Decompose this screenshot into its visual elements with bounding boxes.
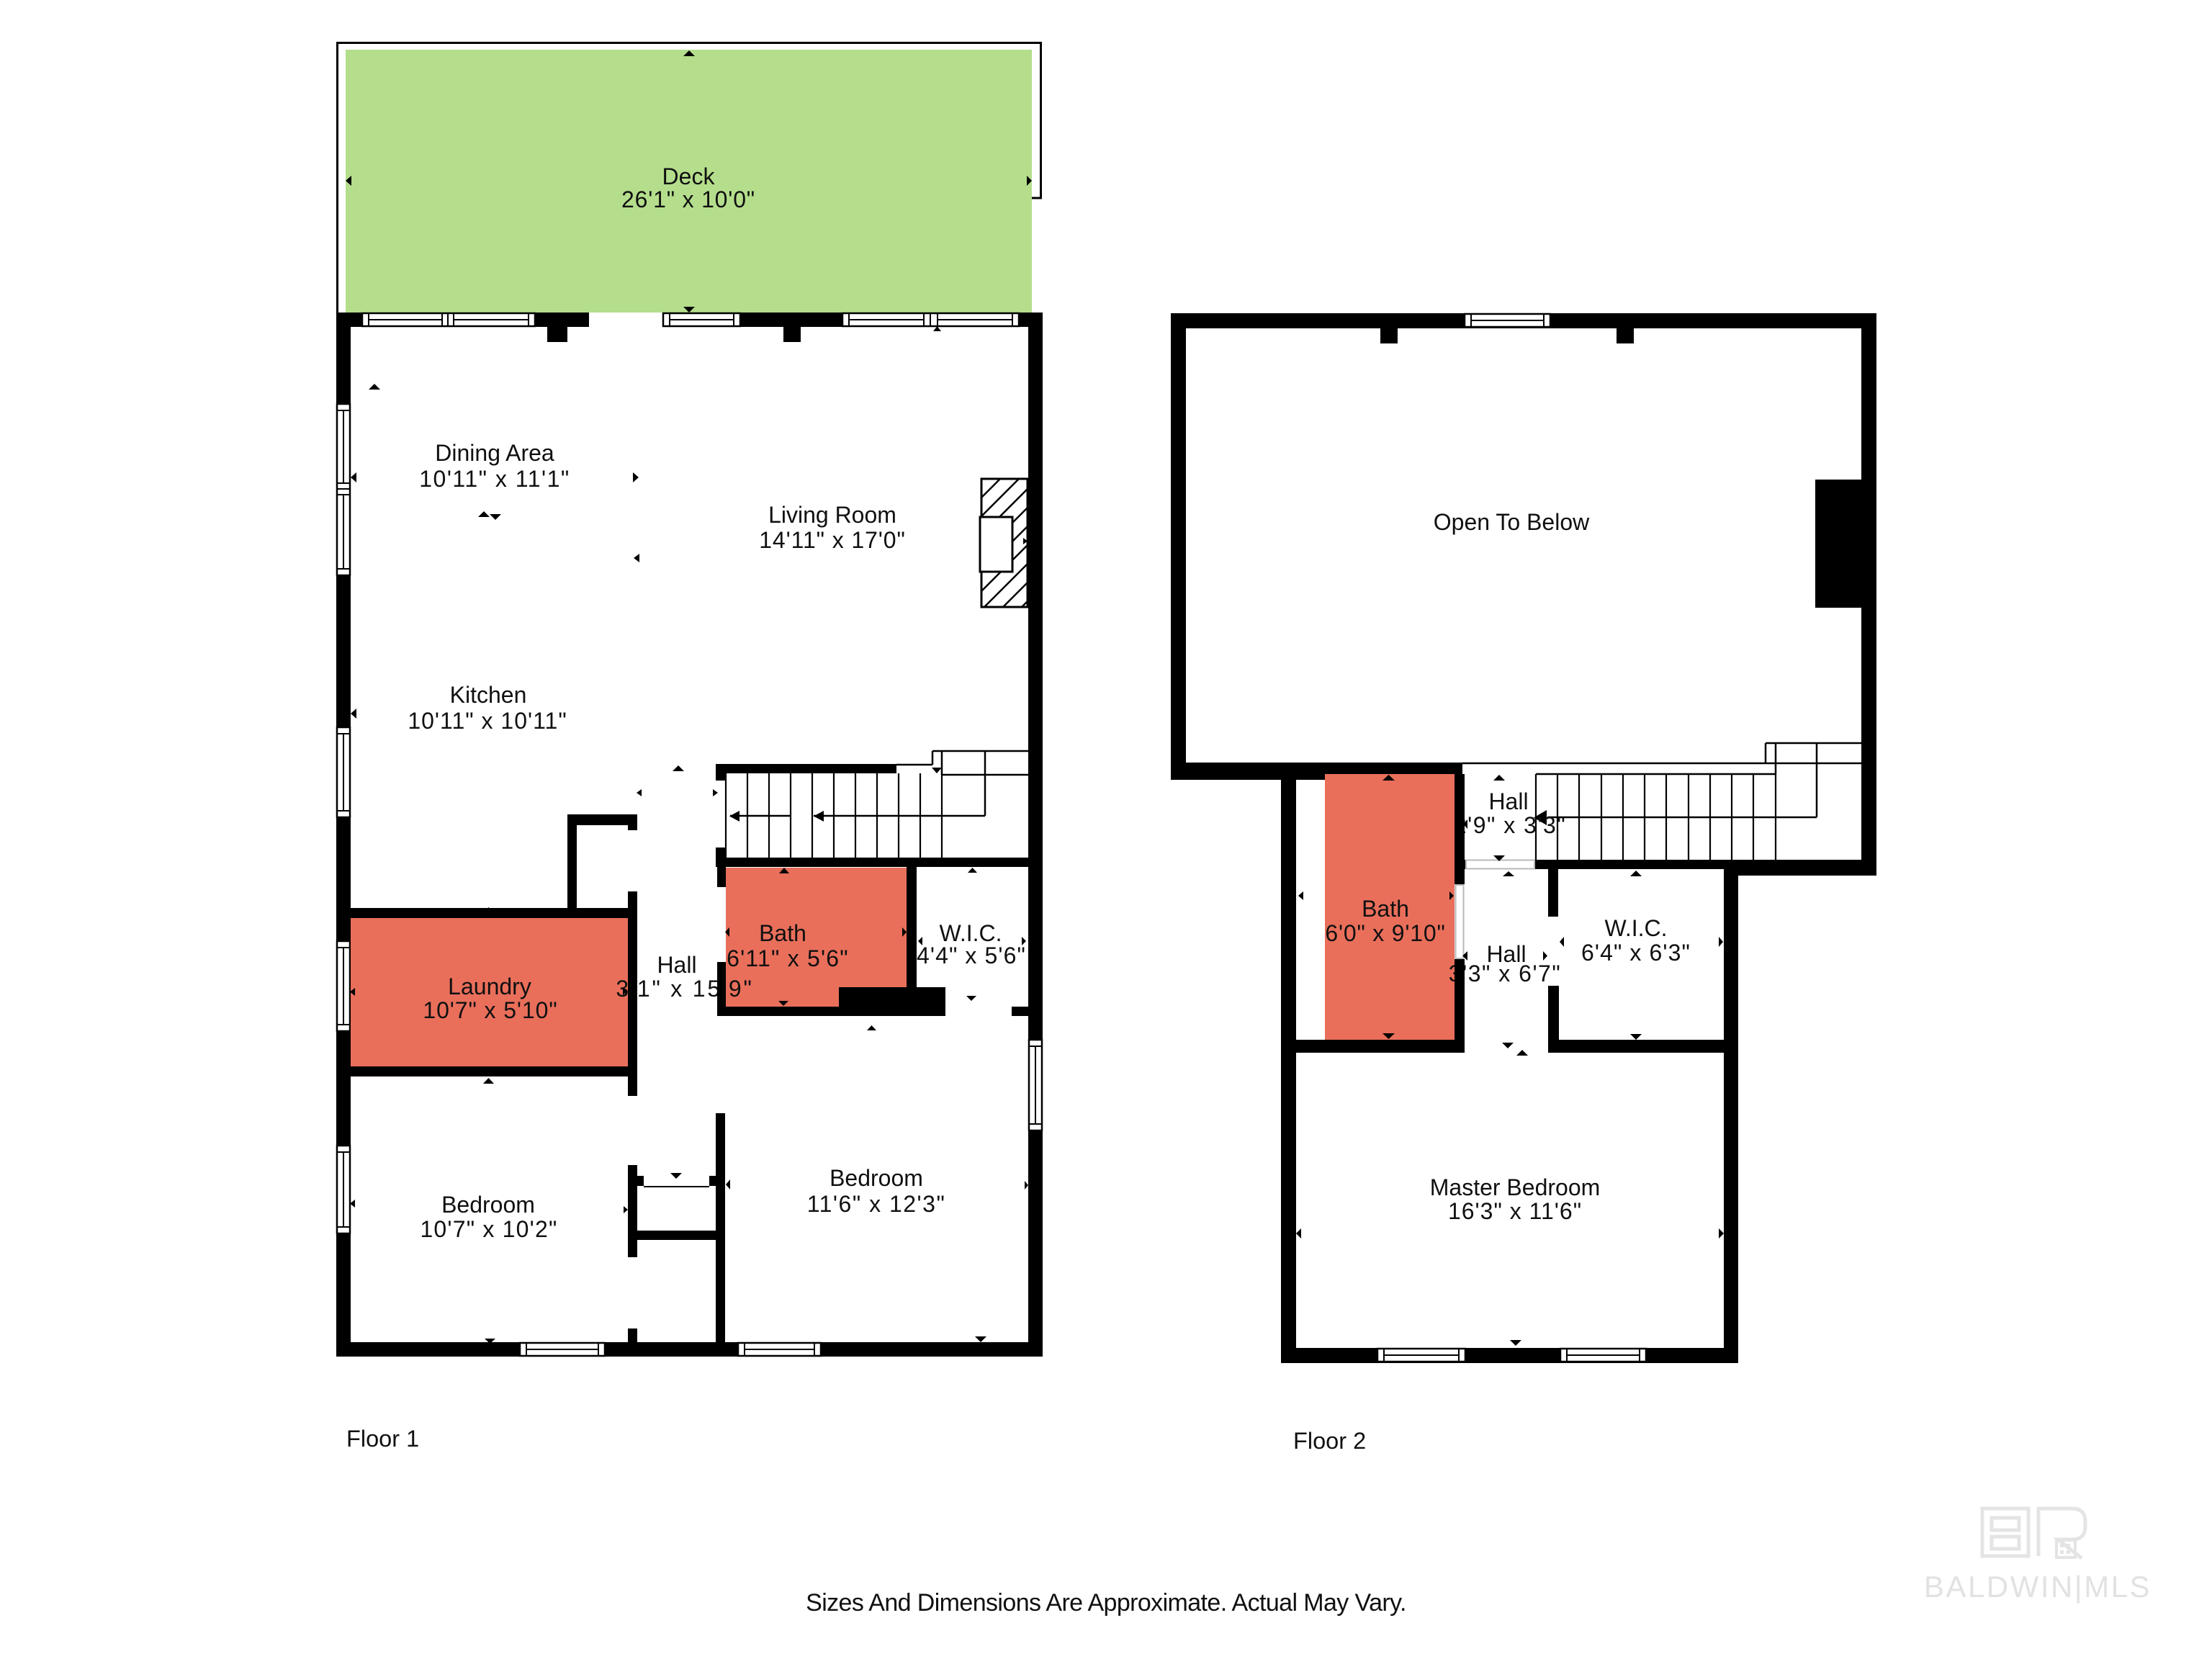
- svg-text:Hall: Hall: [657, 952, 696, 978]
- svg-text:Laundry: Laundry: [448, 974, 531, 999]
- svg-text:26'1" x 10'0": 26'1" x 10'0": [621, 186, 755, 212]
- svg-text:Living Room: Living Room: [768, 502, 896, 528]
- svg-text:16'3" x 11'6": 16'3" x 11'6": [1448, 1198, 1582, 1224]
- svg-text:6'4" x 6'3": 6'4" x 6'3": [1581, 940, 1691, 966]
- svg-text:10'11" x 11'1": 10'11" x 11'1": [419, 466, 570, 492]
- svg-text:Hall: Hall: [1488, 788, 1528, 814]
- svg-text:Floor 1: Floor 1: [346, 1426, 419, 1452]
- svg-text:Kitchen: Kitchen: [450, 682, 527, 708]
- svg-text:Bedroom: Bedroom: [441, 1192, 535, 1218]
- svg-text:Dining Area: Dining Area: [435, 440, 554, 466]
- svg-text:10'11" x 10'11": 10'11" x 10'11": [408, 708, 567, 734]
- svg-text:Floor 2: Floor 2: [1293, 1428, 1366, 1454]
- svg-text:Bath: Bath: [1362, 896, 1409, 922]
- svg-text:11'6" x 12'3": 11'6" x 12'3": [807, 1191, 946, 1217]
- svg-text:6'0" x 9'10": 6'0" x 9'10": [1325, 920, 1445, 946]
- svg-text:W.I.C.: W.I.C.: [1604, 915, 1667, 941]
- svg-text:10'7" x 5'10": 10'7" x 5'10": [423, 997, 557, 1023]
- svg-text:2'9" x 3'3": 2'9" x 3'3": [1454, 812, 1566, 838]
- svg-text:Master Bedroom: Master Bedroom: [1430, 1174, 1601, 1200]
- svg-text:14'11" x 17'0": 14'11" x 17'0": [759, 527, 906, 553]
- svg-text:10'7" x 10'2": 10'7" x 10'2": [420, 1216, 557, 1242]
- svg-text:Bedroom: Bedroom: [829, 1165, 923, 1191]
- svg-text:Open To Below: Open To Below: [1434, 509, 1590, 535]
- svg-text:BALDWIN|MLS: BALDWIN|MLS: [1924, 1570, 2152, 1604]
- svg-text:Deck: Deck: [662, 163, 716, 189]
- svg-text:Bath: Bath: [759, 920, 806, 946]
- svg-text:3'3" x 6'7": 3'3" x 6'7": [1449, 961, 1561, 986]
- svg-text:Sizes And Dimensions Are Appro: Sizes And Dimensions Are Approximate. Ac…: [806, 1589, 1406, 1617]
- svg-text:4'4" x 5'6": 4'4" x 5'6": [917, 943, 1026, 968]
- svg-text:6'11" x 5'6": 6'11" x 5'6": [727, 945, 849, 971]
